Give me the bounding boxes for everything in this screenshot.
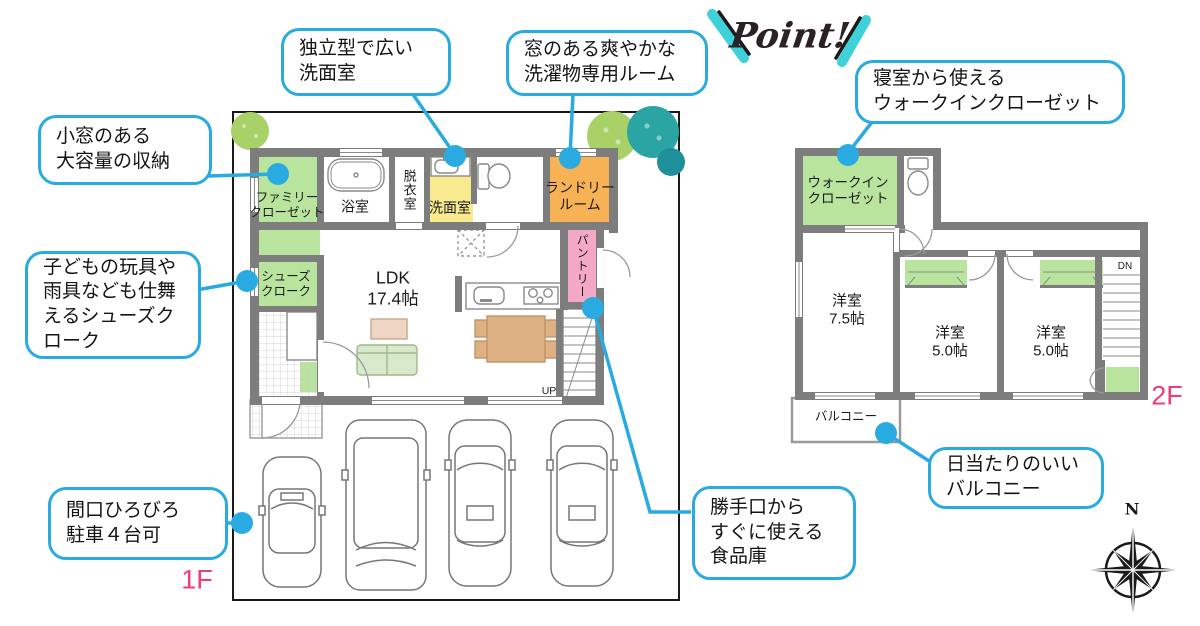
car-icon-1 [259, 457, 325, 587]
stairs-dn-label: DN [1118, 261, 1132, 273]
room-label-bedroom-50b: 洋室 5.0帖 [1033, 324, 1069, 359]
callout-laundry-room: 窓のある爽やかな 洗濯物専用ルーム [506, 30, 708, 96]
callout-washroom: 独立型で広い 洗面室 [281, 28, 451, 96]
stairs-up-label: UP [542, 385, 557, 397]
room-label-ldk: LDK 17.4帖 [367, 267, 419, 308]
floor-tag-1f: 1F [181, 565, 213, 596]
room-label-shoes-cloak: シューズ クローク [261, 269, 311, 299]
room-label-balcony: バルコニー [815, 410, 877, 425]
car-icon-3 [445, 420, 515, 586]
car-icon-4 [547, 420, 617, 586]
callout-pantry: 勝手口から すぐに使える 食品庫 [692, 486, 856, 580]
callout-balcony: 日当たりのいい バルコニー [928, 447, 1104, 509]
car-icons [259, 420, 617, 590]
callout-storage: 小窓のある 大容量の収納 [38, 115, 212, 185]
room-label-walk-in-closet: ウォークイン クローゼット [808, 175, 889, 207]
car-icon-2 [342, 420, 430, 590]
compass-north-label: N [1125, 501, 1140, 520]
callout-parking: 間口ひろびろ 駐車４台可 [48, 487, 228, 560]
room-label-family-closet: ファミリー クローゼット [249, 190, 324, 220]
room-label-washroom: 洗面室 [429, 200, 471, 217]
room-label-bathroom: 浴室 [341, 199, 369, 216]
room-label-laundry-room: ランドリー ルーム [545, 179, 615, 212]
floor-tag-2f: 2F [1151, 381, 1183, 412]
room-label-bedroom-50a: 洋室 5.0帖 [932, 324, 968, 359]
compass-icon [1085, 522, 1181, 618]
point-logo: Point! [728, 16, 853, 57]
room-label-pantry: パントリー [575, 234, 589, 299]
callout-shoes-cloak: 子どもの玩具や 雨具なども仕舞 えるシューズク ローク [25, 251, 201, 359]
room-label-dressing-room: 脱衣室 [401, 169, 416, 211]
floorplan-sheet: Point! 独立型で広い 洗面室 窓のある爽やかな 洗濯物専用ルーム 寝室から… [0, 0, 1200, 626]
callout-walk-in-closet: 寝室から使える ウォークインクローゼット [855, 60, 1125, 124]
room-label-bedroom-75: 洋室 7.5帖 [829, 292, 865, 327]
